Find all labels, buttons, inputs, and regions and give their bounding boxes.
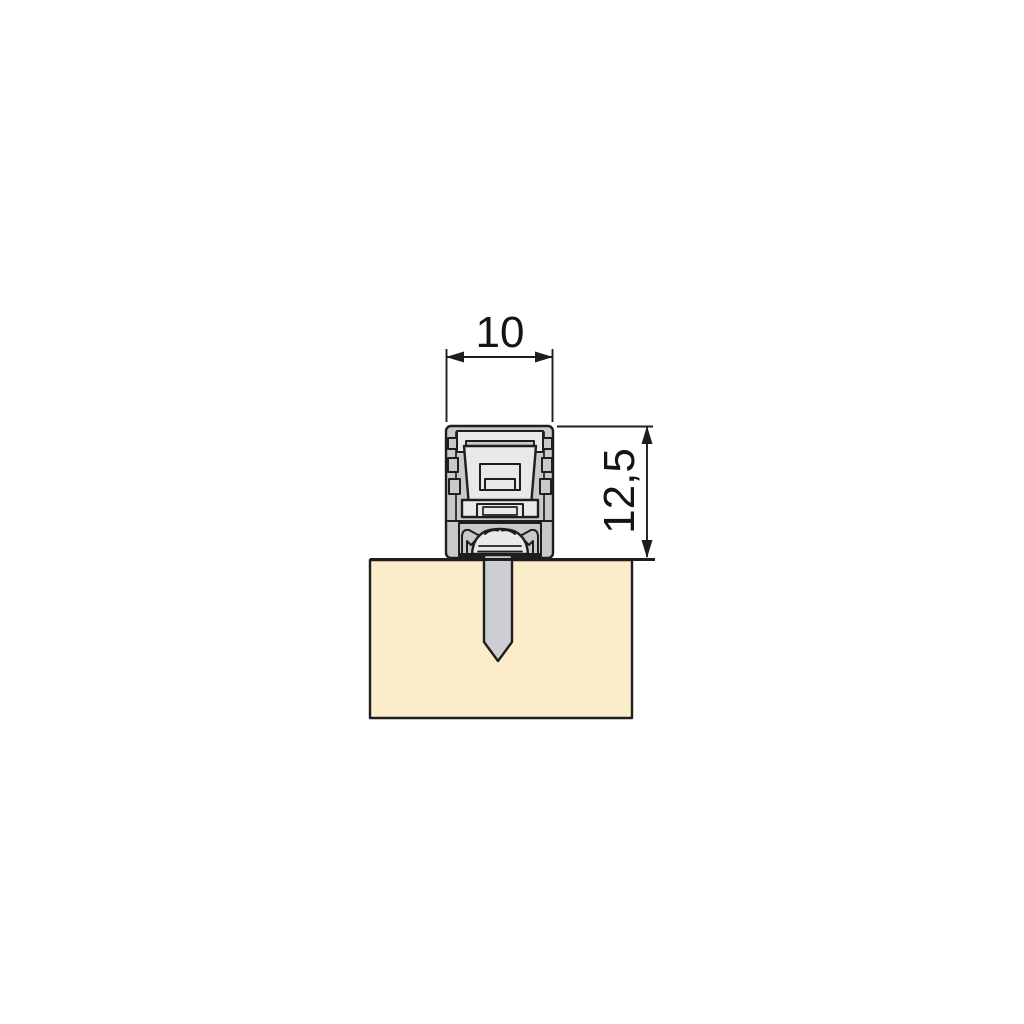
width-arrow-left-icon	[446, 352, 464, 363]
height-arrow-down-icon	[642, 540, 653, 558]
width-arrow-right-icon	[535, 352, 553, 363]
wall-notch-right-3	[540, 479, 551, 494]
mounting-profile	[446, 426, 553, 558]
height-dimension: 12,5	[557, 426, 653, 558]
wall-notch-left-1	[448, 438, 457, 449]
width-dimension: 10	[446, 308, 553, 422]
width-dimension-label: 10	[476, 308, 525, 357]
wall-notch-right-1	[543, 438, 552, 449]
tray-slot-inner	[483, 507, 517, 515]
wall-notch-left-3	[449, 479, 460, 494]
wall-notch-left-2	[448, 458, 458, 472]
bucket-slot-inner	[485, 479, 515, 490]
height-dimension-label: 12,5	[595, 448, 644, 534]
drawing-canvas: 10 12,5	[0, 0, 1024, 1024]
height-arrow-up-icon	[642, 426, 653, 444]
wall-notch-right-2	[542, 458, 552, 472]
fixing-pin	[484, 555, 512, 661]
cross-section-diagram: 10 12,5	[0, 0, 1024, 1024]
